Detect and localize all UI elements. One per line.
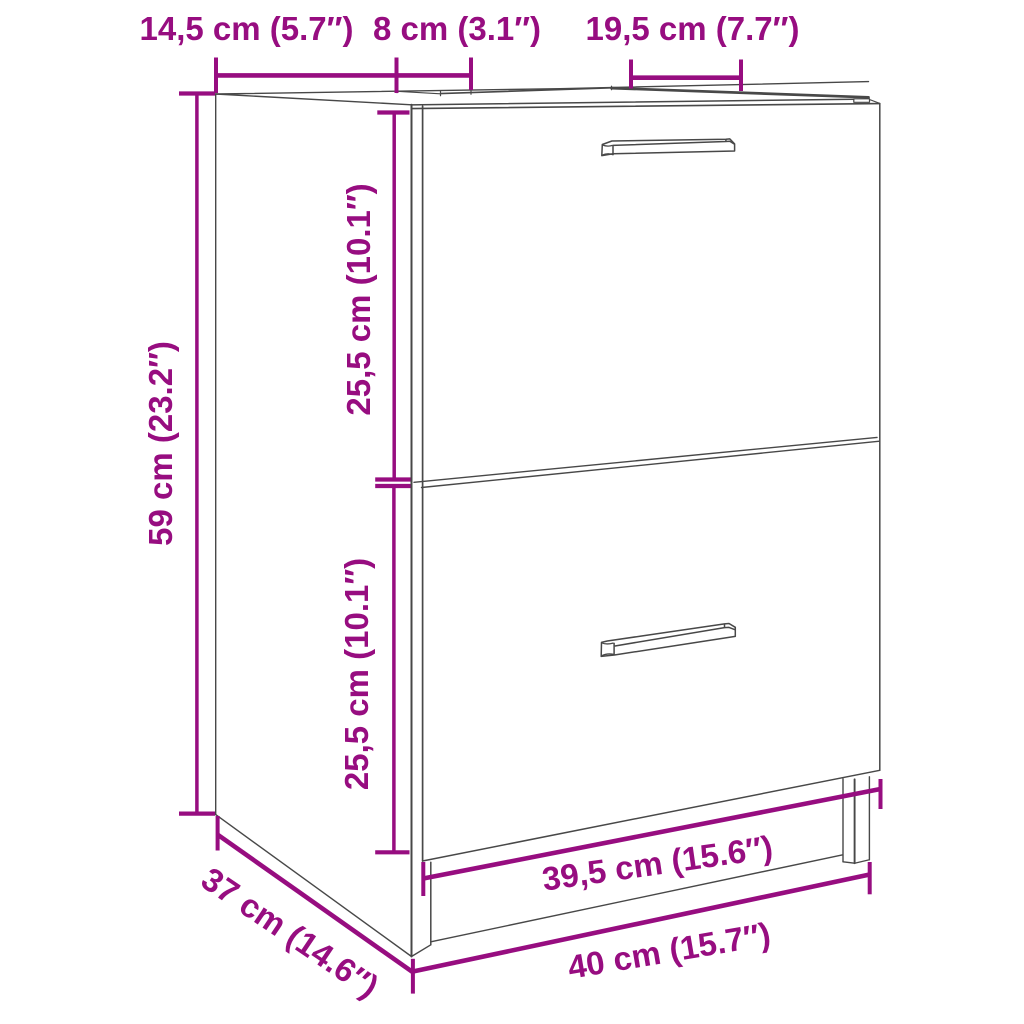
svg-text:25,5 cm (10.1″): 25,5 cm (10.1″) <box>340 183 377 415</box>
svg-text:19,5 cm (7.7″): 19,5 cm (7.7″) <box>586 10 800 47</box>
svg-text:8 cm (3.1″): 8 cm (3.1″) <box>373 10 541 47</box>
svg-text:14,5 cm (5.7″): 14,5 cm (5.7″) <box>140 10 354 47</box>
svg-text:59 cm (23.2″): 59 cm (23.2″) <box>142 341 179 546</box>
svg-text:25,5 cm (10.1″): 25,5 cm (10.1″) <box>338 558 375 790</box>
